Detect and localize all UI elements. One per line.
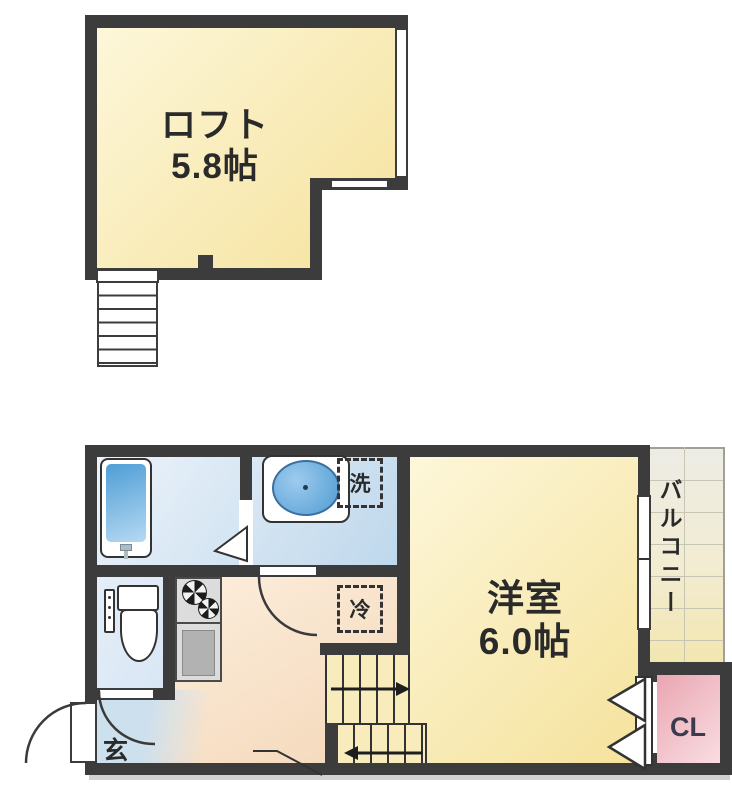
westernroom-left-wall: [397, 445, 410, 655]
bathtub-faucet: [120, 544, 132, 551]
closet-left-jamb-bottom: [645, 753, 657, 775]
closet-right-wall: [720, 662, 732, 775]
refrigerator-label: 冷: [350, 594, 371, 624]
wetarea-bottom-wall-left: [85, 565, 258, 577]
stove-burner-2: [198, 598, 219, 619]
closet-left-jamb-top: [645, 662, 657, 682]
bath-washroom-divider-wall: [240, 457, 252, 500]
toilet-right-wall: [163, 577, 175, 700]
kitchen-sink: [182, 630, 215, 676]
stair-top-wall: [320, 643, 410, 655]
staircase-lower-run: [338, 723, 427, 763]
lower-wall-top: [85, 445, 650, 457]
washing-machine-label: 洗: [350, 468, 371, 498]
kitchen-counter-divider: [177, 622, 220, 624]
bathroom-door-opening: [239, 500, 253, 566]
loft-label-block: ロフト 5.8帖: [110, 105, 320, 187]
loft-stair-landing: [96, 269, 159, 283]
stair-left-wall: [325, 723, 338, 775]
lower-wall-bottom: [85, 763, 732, 775]
washing-machine-space: 洗: [337, 458, 383, 508]
westernroom-right-wall-lower: [638, 630, 650, 763]
toilet-bottom-wall-b: [155, 688, 175, 700]
loft-window-notch: [330, 179, 389, 189]
bathtub-faucet-stem: [124, 551, 128, 559]
washbasin-drain: [303, 485, 308, 490]
loft-railing-post: [198, 255, 213, 269]
entrance-door-leaf: [70, 702, 97, 763]
washroom-door-leaf: [258, 565, 318, 577]
closet-top-wall: [645, 662, 732, 675]
loft-wall-left: [85, 15, 97, 280]
western-room-label-block: 洋室 6.0帖: [420, 577, 630, 663]
toilet-tank: [117, 585, 159, 611]
loft-window-right: [395, 28, 408, 178]
loft-wall-top: [85, 15, 408, 28]
loft-label: ロフト: [110, 105, 320, 146]
lower-wall-shadow: [89, 775, 730, 780]
toilet-door-leaf: [98, 688, 155, 700]
toilet-panel-dot-3: [108, 616, 111, 619]
toilet-panel-dot-1: [108, 596, 111, 599]
balcony-label: バルコニー: [652, 478, 686, 663]
floorplan-canvas: ロフト 5.8帖 洗 冷: [0, 0, 732, 800]
toilet-bottom-wall-a: [85, 688, 98, 700]
loft-wall-notch-v: [310, 178, 322, 280]
western-room-label: 洋室: [420, 577, 630, 620]
westernroom-window-center-tick: [639, 558, 649, 560]
toilet-panel-dot-2: [108, 606, 111, 609]
loft-notch-mask: [322, 178, 408, 278]
western-room-size-label: 6.0帖: [420, 620, 630, 663]
refrigerator-space: 冷: [337, 585, 383, 633]
staircase-upper-run: [325, 655, 410, 723]
westernroom-right-wall-upper: [638, 445, 650, 495]
loft-size-label: 5.8帖: [110, 146, 320, 187]
westernroom-window: [637, 495, 651, 630]
bathtub-water: [106, 464, 146, 542]
entrance-label: 玄: [103, 731, 128, 767]
closet-label: CL: [660, 712, 716, 743]
loft-stairs: [97, 283, 158, 367]
